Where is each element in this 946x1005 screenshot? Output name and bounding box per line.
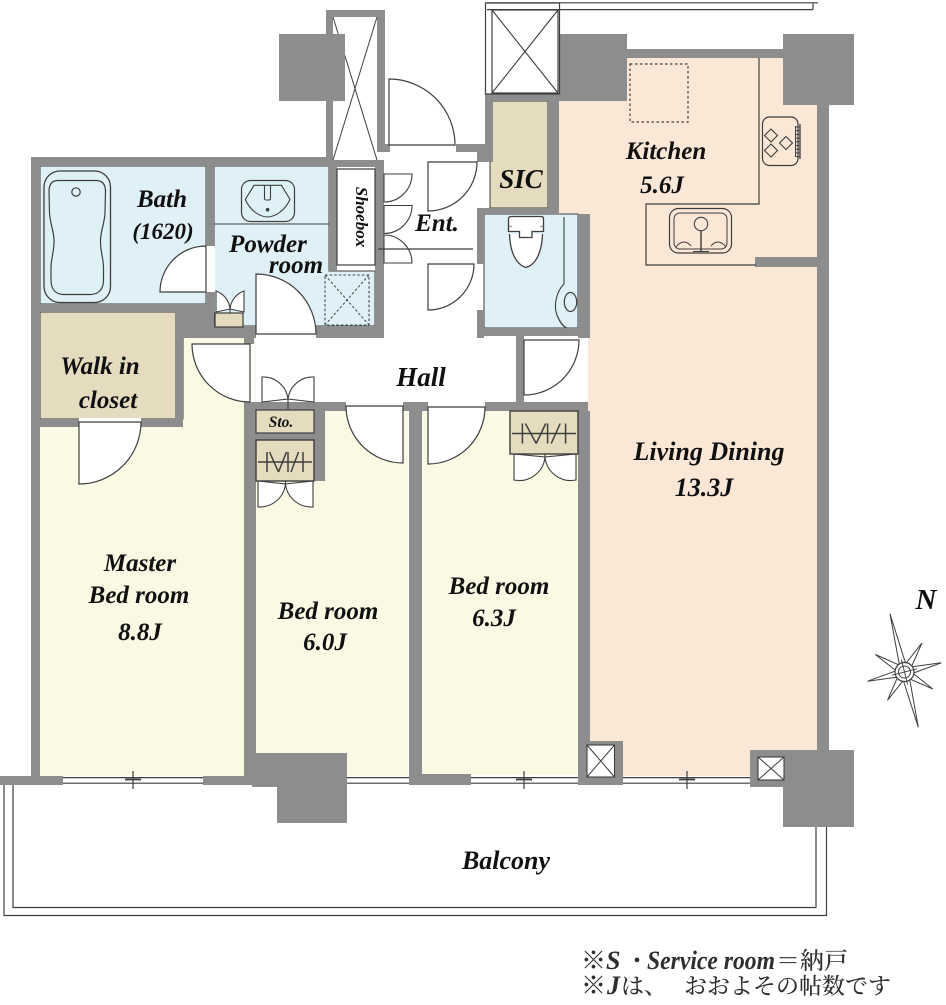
svg-text:Bed room: Bed room xyxy=(448,573,550,600)
svg-text:Balcony: Balcony xyxy=(461,846,551,875)
svg-text:(1620): (1620) xyxy=(132,219,193,244)
svg-text:room: room xyxy=(269,252,323,279)
svg-text:13.3J: 13.3J xyxy=(675,473,735,502)
svg-text:Bed room: Bed room xyxy=(88,582,190,609)
svg-text:closet: closet xyxy=(79,387,138,414)
svg-text:5.6J: 5.6J xyxy=(640,172,685,199)
svg-text:Master: Master xyxy=(103,550,177,577)
svg-text:Sto.: Sto. xyxy=(269,414,294,431)
svg-text:6.0J: 6.0J xyxy=(303,629,348,656)
svg-text:Bath: Bath xyxy=(136,186,187,213)
svg-text:Living Dining: Living Dining xyxy=(633,437,785,466)
svg-text:Shoebox: Shoebox xyxy=(352,187,371,248)
svg-text:Hall: Hall xyxy=(395,362,446,392)
svg-text:Ent.: Ent. xyxy=(414,210,459,237)
svg-text:8.8J: 8.8J xyxy=(118,619,163,646)
svg-text:SIC: SIC xyxy=(499,164,544,194)
svg-text:Service room: Service room xyxy=(647,946,775,975)
svg-text:Bed room: Bed room xyxy=(277,598,379,625)
svg-text:Kitchen: Kitchen xyxy=(625,138,707,165)
svg-text:N: N xyxy=(915,584,938,616)
svg-text:Walk in: Walk in xyxy=(60,353,139,380)
svg-text:J: J xyxy=(606,971,621,1000)
svg-text:6.3J: 6.3J xyxy=(472,605,517,632)
